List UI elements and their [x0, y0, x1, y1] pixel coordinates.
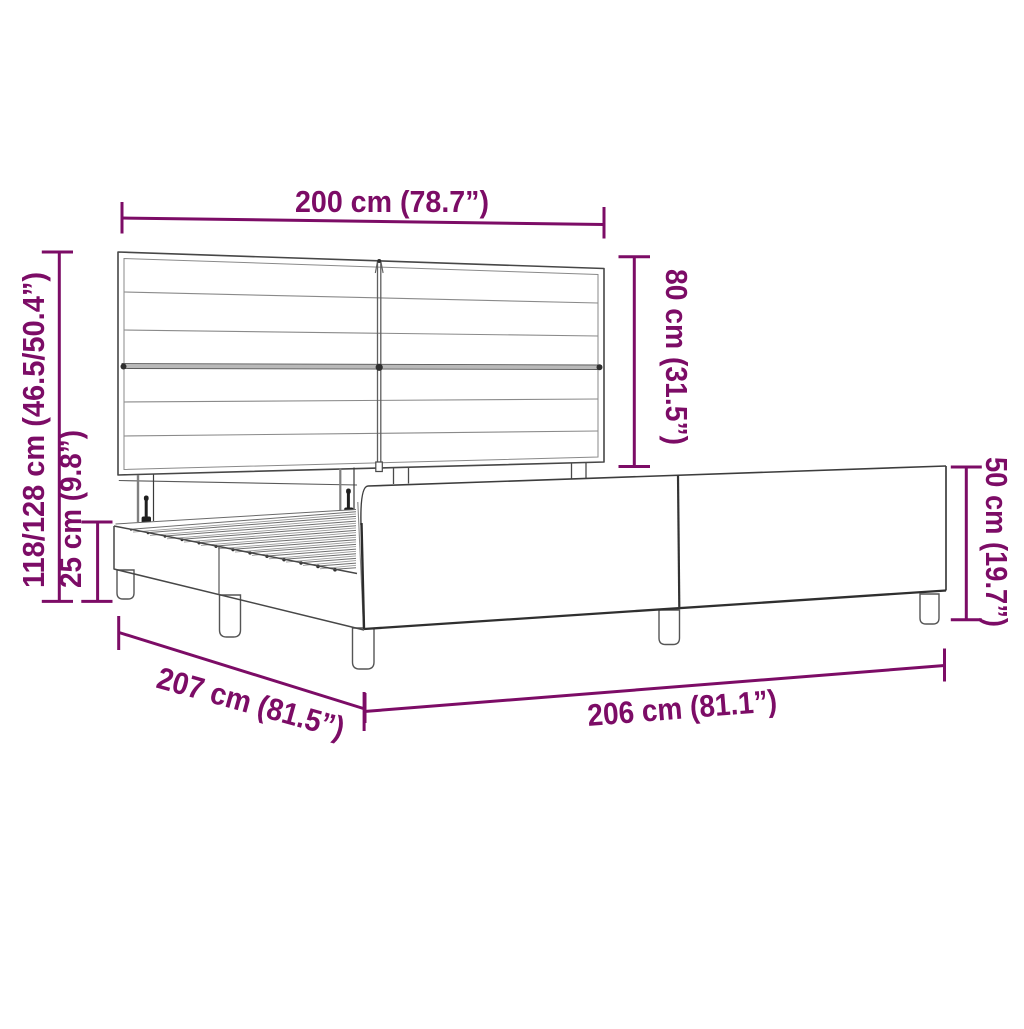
svg-text:25 cm (9.8”): 25 cm (9.8”) — [53, 430, 88, 588]
svg-text:118/128 cm (46.5/50.4”): 118/128 cm (46.5/50.4”) — [16, 272, 51, 588]
svg-text:200 cm (78.7”): 200 cm (78.7”) — [295, 184, 489, 219]
svg-text:80 cm (31.5”): 80 cm (31.5”) — [659, 269, 694, 445]
svg-text:50 cm (19.7”): 50 cm (19.7”) — [979, 457, 1014, 627]
